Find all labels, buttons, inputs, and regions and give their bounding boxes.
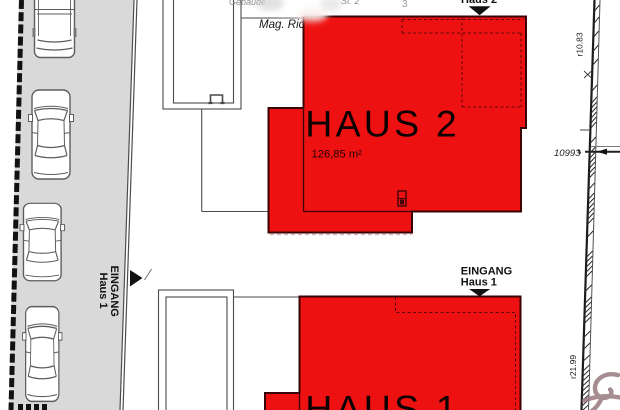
- svg-text:Haus 1: Haus 1: [461, 277, 497, 289]
- svg-text:3: 3: [402, 0, 408, 10]
- svg-text:HAUS 1: HAUS 1: [305, 387, 460, 410]
- svg-text:St. 2: St. 2: [341, 0, 360, 6]
- svg-text:10993: 10993: [554, 148, 581, 159]
- svg-text:126,85 m²: 126,85 m²: [312, 148, 363, 160]
- svg-text:Haus 2: Haus 2: [461, 0, 497, 6]
- svg-text:EINGANG: EINGANG: [461, 265, 512, 277]
- svg-text:HAUS 2: HAUS 2: [305, 102, 460, 144]
- svg-text:Haus 1: Haus 1: [97, 273, 109, 309]
- svg-text:r21.99: r21.99: [568, 355, 578, 379]
- svg-text:r10.83: r10.83: [575, 32, 585, 56]
